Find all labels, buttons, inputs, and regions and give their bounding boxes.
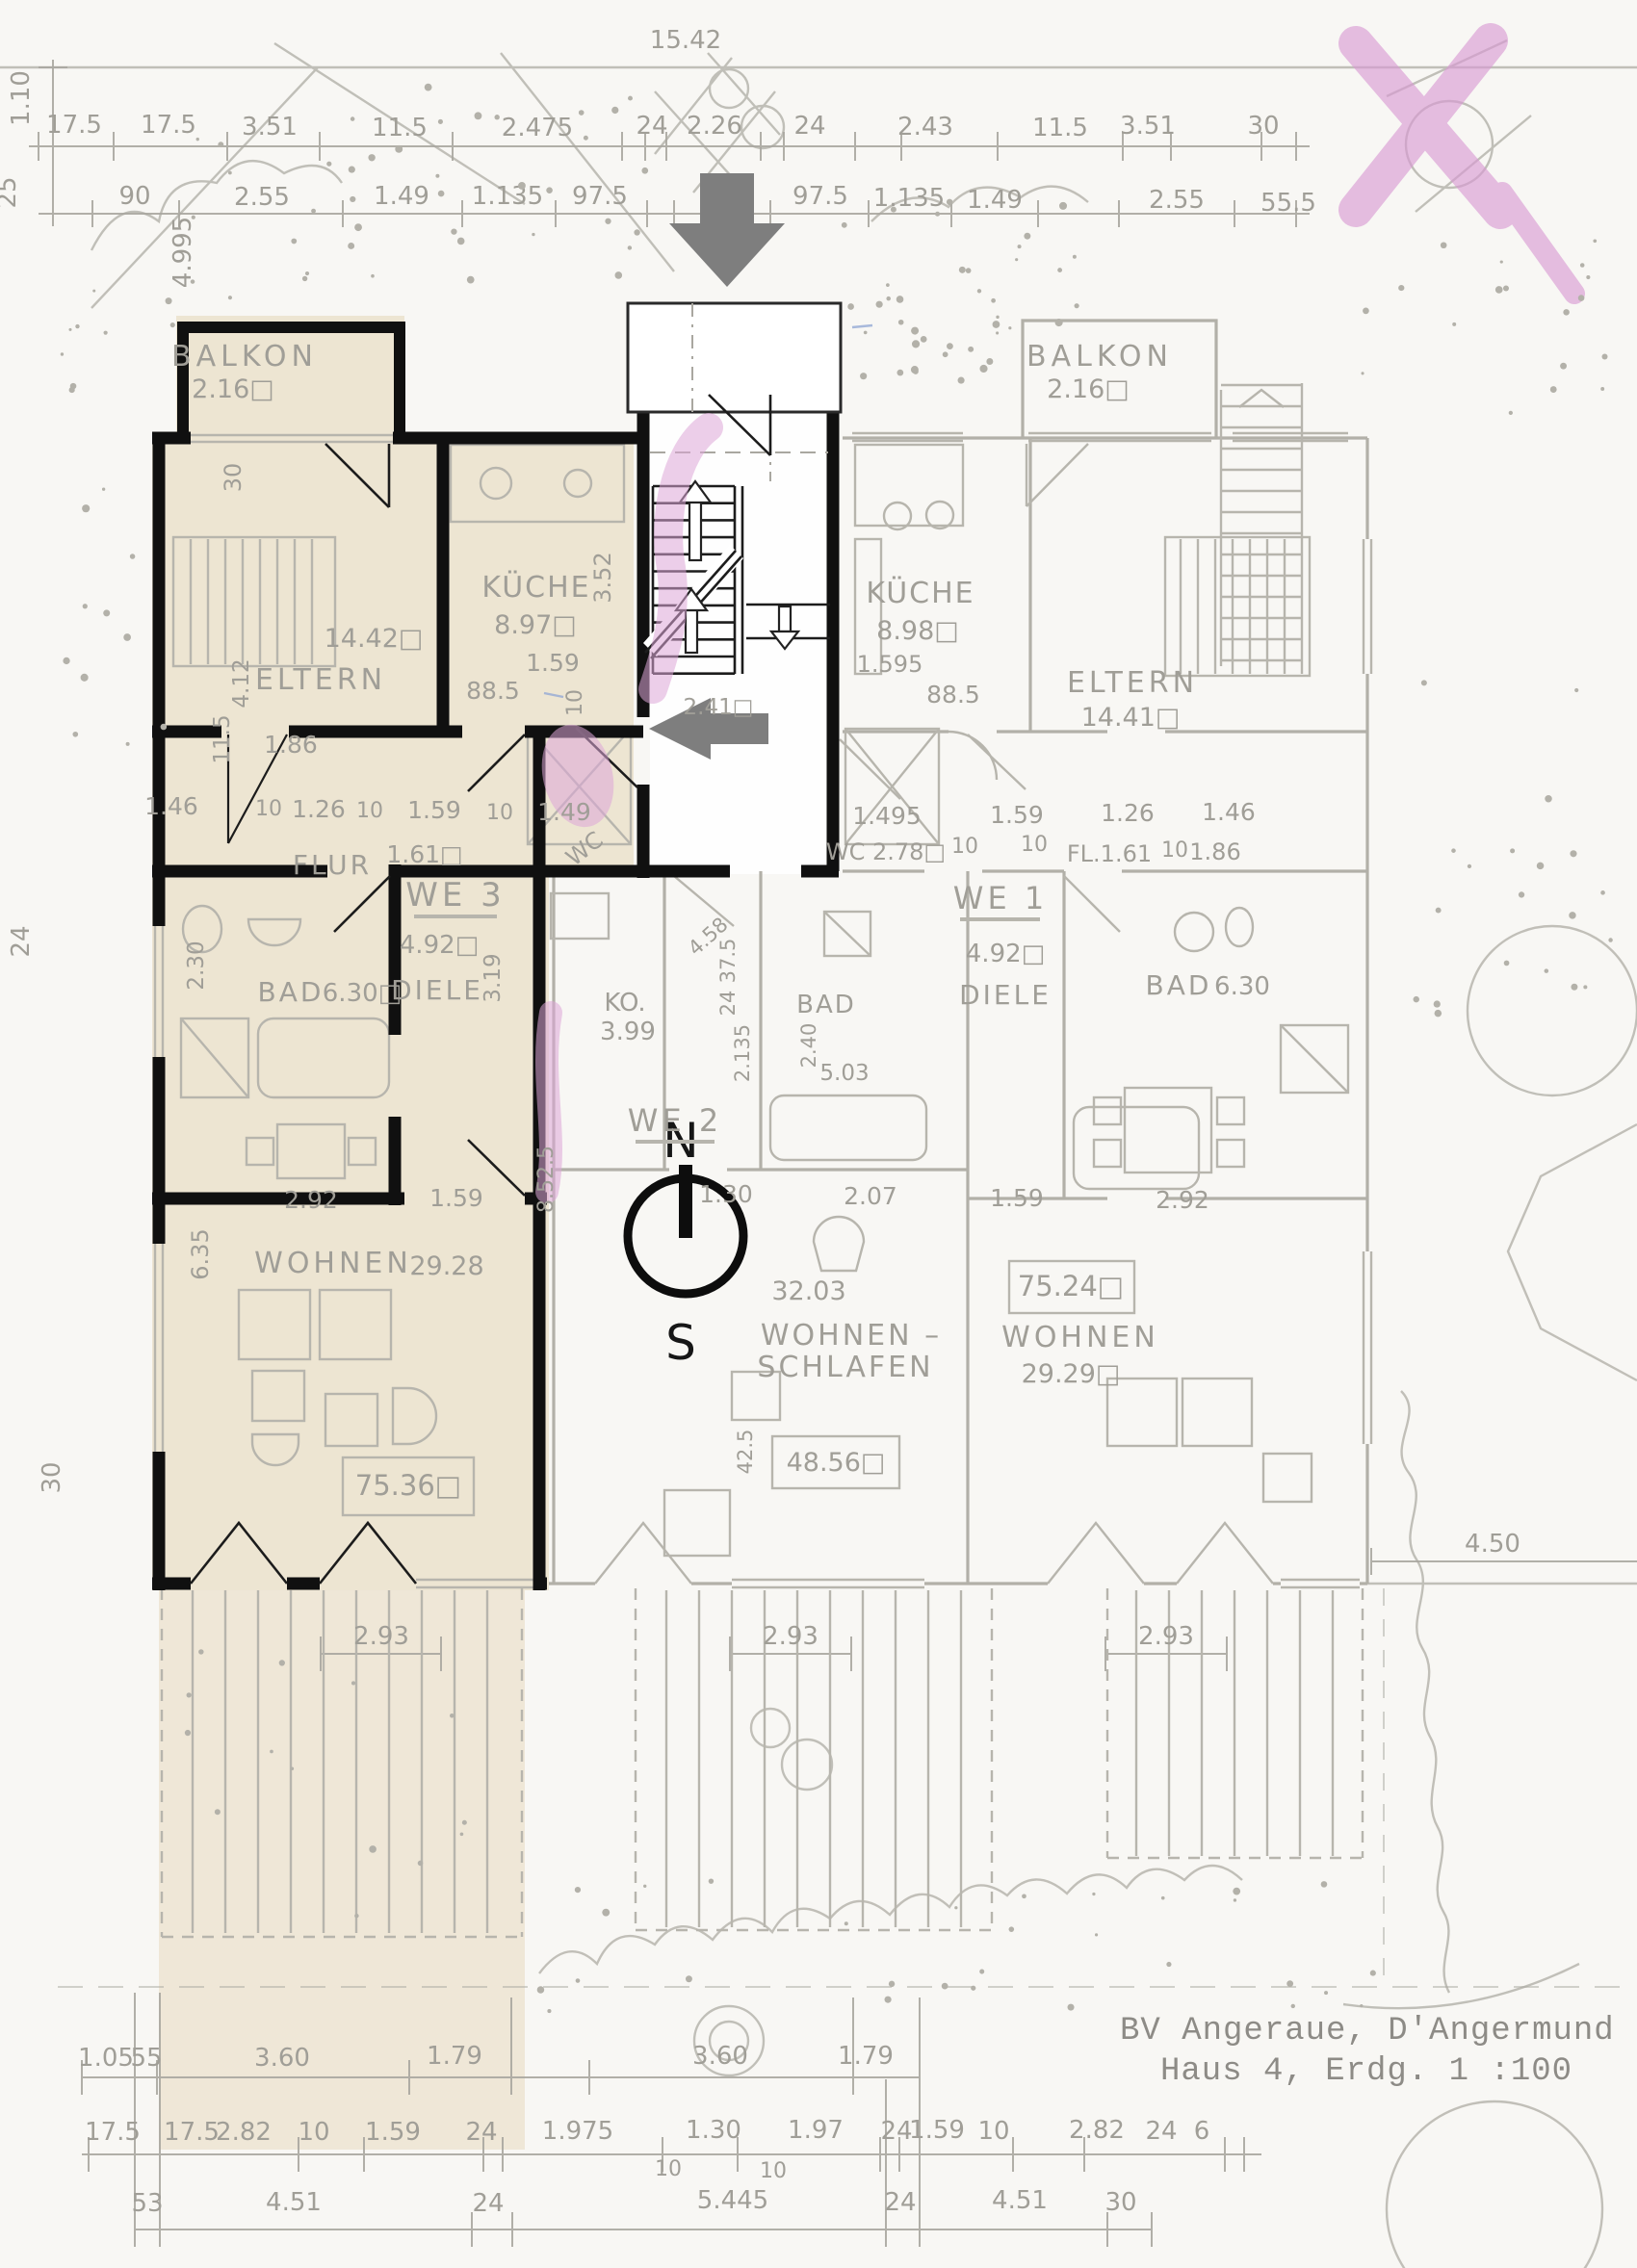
scan-dot	[1550, 386, 1557, 393]
scan-dot	[1018, 245, 1022, 248]
scan-dot	[921, 336, 927, 343]
room-label-diele-we1: DIELE	[959, 979, 1052, 1011]
dimension-label: 15.42	[650, 26, 721, 55]
floor-plan-image: N S 15.4217.517.53.5111.52.475242.26242.…	[0, 0, 1637, 2268]
scan-dot	[302, 276, 307, 281]
scan-dot	[371, 274, 375, 278]
compass-needle	[679, 1165, 692, 1238]
scan-dot	[1500, 260, 1503, 263]
dimension-label: 2.55	[1149, 186, 1205, 215]
dimension-label: 1.26	[292, 795, 346, 823]
scan-dot	[1286, 1980, 1293, 1987]
scan-dot	[1571, 984, 1577, 991]
scan-dot	[349, 167, 355, 173]
scan-dot	[864, 331, 868, 335]
scan-dot	[369, 1845, 377, 1853]
dimension-label: 2.30	[184, 941, 209, 990]
scan-dot	[986, 358, 993, 365]
apartment-label-we2: WE 2	[628, 1102, 722, 1139]
scan-dot	[475, 112, 482, 119]
dimension-label: SCHLAFEN	[757, 1351, 933, 1384]
scan-dot	[123, 633, 131, 641]
scan-dot	[847, 303, 854, 310]
dimension-label: 30	[38, 1461, 66, 1493]
dimension-label: 8.97□	[494, 610, 577, 640]
dimension-label: 24	[472, 2189, 504, 2218]
dimension-label: 1.49	[374, 182, 429, 211]
scan-dot	[1398, 285, 1404, 291]
scan-dot	[532, 233, 534, 236]
dimension-label: 2.92	[1156, 1186, 1209, 1214]
dimension-label: 17.5	[46, 111, 102, 140]
scan-dot	[1451, 848, 1456, 853]
dimension-label: 6.30□	[323, 979, 402, 1008]
scan-dot	[709, 1878, 714, 1883]
scan-dot	[1009, 1926, 1015, 1932]
dimension-label: 6.30	[1214, 972, 1270, 1001]
scan-dot	[991, 298, 996, 303]
entrance-direction-arrow	[669, 173, 785, 287]
scan-dot	[966, 268, 972, 273]
dimension-label: 2.55	[234, 183, 290, 212]
scan-dot	[897, 370, 904, 376]
scan-dot	[103, 609, 110, 616]
dimension-label: 17.5	[141, 111, 196, 140]
dimension-label: 2.41□	[684, 695, 754, 720]
scan-dot	[1057, 268, 1062, 272]
scan-dot	[462, 1820, 467, 1825]
scan-dot	[993, 321, 1000, 328]
dimension-label: 97.5	[793, 182, 848, 211]
scan-dot	[192, 216, 195, 219]
dimension-label: 1.86	[264, 731, 318, 759]
dimension-label: 3.52	[589, 552, 616, 603]
dimension-label: 25	[0, 176, 22, 208]
dimension-label: 2.26	[687, 112, 742, 141]
scan-dot	[467, 276, 475, 284]
dimension-label: 2.93	[353, 1622, 409, 1651]
scan-dot	[187, 1692, 192, 1697]
dimension-label: 14.42□	[325, 624, 424, 654]
dimension-label: 10	[760, 2159, 787, 2183]
dimension-label: 10	[356, 799, 383, 823]
dimension-label: 24	[465, 2118, 497, 2147]
scan-dot	[1503, 285, 1509, 291]
scan-dot	[166, 297, 172, 304]
dimension-label: 4.995	[169, 217, 197, 288]
dimension-label: 1.79	[838, 2042, 894, 2071]
dimension-label: 3.19	[481, 953, 506, 1002]
scan-dot	[279, 1660, 285, 1665]
dimension-label: 4.92□	[966, 940, 1045, 968]
room-label-bad-we3: BAD	[258, 976, 325, 1008]
scan-dot	[1583, 985, 1587, 989]
scan-dot	[82, 504, 90, 512]
scan-dot	[63, 657, 69, 664]
dimension-label: 24	[1145, 2117, 1177, 2146]
dimension-label: 1.26	[1101, 799, 1155, 827]
scan-dot	[348, 243, 354, 249]
scan-dot	[1570, 850, 1576, 857]
apartment-label-we1: WE 1	[953, 880, 1048, 916]
dimension-label: 30	[1247, 112, 1279, 141]
dimension-label: 2.475	[502, 114, 573, 142]
dimension-label: 4.12	[229, 658, 254, 708]
scan-dot	[450, 1714, 455, 1718]
dimension-label: 1.49	[967, 186, 1023, 215]
dimension-label: 4.50	[1465, 1530, 1520, 1559]
scan-dot	[579, 110, 585, 116]
dimension-label: 1.79	[427, 2042, 482, 2071]
scan-dot	[1233, 1888, 1240, 1895]
compass-south-label: S	[665, 1315, 696, 1371]
scan-dot	[1363, 308, 1369, 315]
dimension-label: 5.445	[697, 2186, 768, 2215]
scan-dot	[69, 387, 75, 393]
scan-dot	[942, 1983, 948, 1990]
dimension-label: 24	[793, 112, 825, 141]
dimension-label: 1.59	[429, 1184, 483, 1212]
dimension-label: 29.29□	[1022, 1359, 1121, 1389]
scan-dot	[518, 182, 526, 190]
scan-dot	[1504, 961, 1510, 966]
scan-dot	[605, 219, 611, 224]
dimension-label: 10	[486, 801, 513, 825]
scan-dot	[1545, 968, 1549, 973]
scan-dot	[1291, 2004, 1295, 2008]
dimension-label: 1.59	[990, 801, 1044, 829]
scan-dot	[1024, 233, 1030, 240]
scan-dot	[1073, 255, 1077, 259]
scan-dot	[104, 331, 108, 335]
dimension-label: 8.52.5	[534, 1146, 559, 1213]
scan-dot	[1161, 1896, 1165, 1900]
scan-dot	[228, 296, 232, 299]
pink-x-mark	[1356, 40, 1574, 294]
dimension-label: 42.5	[734, 1430, 757, 1475]
scan-dot	[75, 324, 79, 328]
dimension-label: 90	[118, 182, 150, 211]
dimension-label: 11.5	[372, 114, 428, 142]
scan-dot	[889, 1981, 895, 1987]
dimension-label: 4.92□	[400, 931, 479, 960]
dimension-label: 24	[716, 991, 740, 1017]
scan-dot	[305, 271, 309, 275]
room-label-bad-we2: BAD	[796, 991, 856, 1019]
scan-dot	[494, 115, 499, 119]
room-label-wohnen-we1: WOHNEN	[1001, 1321, 1159, 1354]
scan-dot	[1569, 912, 1575, 918]
scan-dot	[291, 239, 297, 245]
area-label-we2: 48.56□	[787, 1448, 886, 1478]
scan-dot	[611, 107, 618, 114]
dimension-label: 30	[220, 463, 247, 493]
scan-dot	[1008, 326, 1011, 329]
scan-dot	[602, 1909, 610, 1917]
scan-dot	[1055, 319, 1063, 326]
scan-dot	[947, 199, 952, 205]
scan-dot	[351, 116, 355, 121]
scan-dot	[943, 351, 948, 357]
dimension-label: 1.495	[852, 802, 922, 830]
dimension-label: 10	[655, 2157, 682, 2181]
dimension-label: 11.5	[210, 714, 235, 763]
dimension-label: 1.61□	[386, 840, 462, 868]
dimension-label: 1.135	[472, 182, 543, 211]
dimension-label: 37.5	[716, 939, 740, 984]
scan-dot	[350, 196, 355, 202]
scan-dot	[575, 1887, 581, 1893]
scan-dot	[1362, 372, 1364, 374]
scan-dot	[435, 174, 439, 178]
dimension-label: 2.92	[284, 1186, 338, 1214]
scan-dot	[1022, 1894, 1026, 1898]
dimension-label: 6	[1194, 2117, 1210, 2146]
scan-dot	[935, 212, 940, 217]
project-title: BV Angeraue, D'Angermund	[1120, 2013, 1615, 2049]
scan-dot	[81, 674, 89, 682]
scan-dot	[1075, 303, 1079, 308]
scan-dot	[438, 191, 445, 197]
scan-dot	[451, 228, 456, 234]
scan-dot	[958, 377, 965, 384]
scan-dot	[979, 1970, 984, 1974]
scan-dot	[1441, 242, 1447, 248]
scan-dot	[1421, 680, 1427, 685]
scan-dot	[584, 136, 588, 141]
dimension-label: 4.51	[992, 2186, 1048, 2215]
scan-dot	[1563, 309, 1570, 316]
dimension-label: 53	[131, 2189, 163, 2218]
scan-dot	[954, 1906, 957, 1909]
dimension-label: 1.59	[526, 649, 580, 677]
dimension-label: 55	[130, 2044, 162, 2073]
title-block: BV Angeraue, D'Angermund Haus 4, Erdg. 1…	[1120, 2013, 1615, 2090]
dimension-label: 1.10	[7, 70, 36, 126]
room-label-kueche-we3: KÜCHE	[481, 570, 590, 605]
entrance-canopy	[628, 303, 841, 412]
dimension-label: 1.59	[909, 2116, 965, 2145]
scan-dot	[1580, 263, 1585, 268]
room-label-balkon-we3: BALKON	[171, 340, 318, 374]
dimension-label: 10	[563, 689, 587, 716]
room-label-balkon-we1: BALKON	[1026, 340, 1173, 374]
dimension-label: 10	[1161, 838, 1188, 863]
scan-dot	[1092, 1893, 1095, 1895]
scan-dot	[326, 162, 331, 167]
scan-dot	[896, 296, 904, 303]
scan-dot	[1452, 322, 1456, 326]
apartment-label-we3: WE 3	[405, 876, 506, 915]
scan-dot	[1545, 795, 1551, 802]
dimension-label: 17.5	[164, 2118, 220, 2147]
dimension-label: FL.1.61	[1067, 840, 1152, 867]
scan-dot	[1435, 1010, 1442, 1018]
scan-dot	[270, 1750, 273, 1754]
dimension-label: 1.46	[144, 792, 198, 820]
dimension-label: 1.135	[873, 184, 945, 213]
scan-dot	[885, 1997, 892, 2003]
scan-dot	[68, 328, 71, 331]
dimension-label: 6.35	[187, 1228, 214, 1279]
dimension-label: 8.98□	[876, 616, 959, 646]
dimension-label: 32.03	[771, 1276, 845, 1306]
scan-dot	[1468, 864, 1471, 868]
scan-dot	[643, 1885, 646, 1888]
scan-dot	[546, 187, 553, 193]
scan-dot	[641, 168, 648, 174]
dimension-label: 2.93	[1138, 1622, 1194, 1651]
scan-dot	[977, 289, 981, 293]
room-label-kueche-we1: KÜCHE	[866, 576, 974, 610]
scan-dot	[1234, 1898, 1236, 1901]
scan-dot	[1360, 2004, 1363, 2007]
scan-dot	[547, 2009, 551, 2013]
dimension-label: 24	[7, 925, 36, 957]
scan-dot	[628, 96, 633, 101]
dimension-label: 1.59	[990, 1184, 1044, 1212]
scan-dot	[912, 340, 920, 348]
scan-dot	[311, 209, 316, 214]
dimension-label: 88.5	[466, 677, 520, 705]
dimension-label: 17.5	[85, 2118, 141, 2147]
scan-dot	[876, 301, 883, 308]
scan-dot	[1015, 258, 1018, 261]
dimension-label: 10	[951, 835, 978, 859]
room-label-wohnen-we3: WOHNEN	[254, 1247, 412, 1280]
scan-dot	[1068, 2004, 1075, 2011]
scan-dot	[971, 1986, 975, 1991]
scan-dot	[83, 604, 88, 608]
scan-dot	[1324, 1991, 1328, 1995]
dimension-label: 2.16□	[1047, 374, 1130, 404]
dimension-label: 1.05	[78, 2044, 134, 2073]
dimension-label: 2.40	[797, 1023, 820, 1069]
dimension-label: 55.5	[1260, 189, 1316, 218]
scan-dot	[686, 1975, 692, 1982]
scan-dot	[1510, 848, 1515, 853]
dimension-label: 1.46	[1202, 798, 1256, 826]
scan-dot	[130, 554, 135, 558]
room-label-bad-we1: BAD	[1146, 969, 1212, 1001]
scan-dot	[72, 732, 78, 737]
scan-dot	[1574, 688, 1578, 692]
dimension-label: 24	[880, 2117, 912, 2146]
dimension-label: 2.93	[763, 1622, 818, 1651]
scan-dot	[354, 223, 362, 231]
scan-dot	[351, 1681, 355, 1685]
dimension-label: 2.43	[897, 113, 953, 142]
scan-dot	[996, 316, 999, 319]
dimension-label: 1.30	[686, 2116, 741, 2145]
dimension-label: 1.975	[542, 2117, 613, 2146]
scan-dot	[1095, 1933, 1098, 1936]
scan-dot	[1414, 996, 1419, 1002]
dimension-label: 24	[884, 2188, 916, 2217]
scan-dot	[1608, 938, 1612, 941]
dimension-label: 1.59	[407, 796, 461, 824]
dimension-label: 30	[1104, 2188, 1136, 2217]
scan-dot	[395, 145, 403, 153]
scan-dot	[913, 369, 919, 374]
dimension-label: 1.97	[788, 2116, 844, 2145]
room-label-diele-we3: DIELE	[391, 974, 483, 1006]
scan-dot	[947, 343, 953, 349]
scan-dot	[844, 1921, 848, 1925]
dimension-label: 5.03	[819, 1061, 869, 1086]
dimension-label: 1.595	[857, 651, 923, 678]
scan-dot	[1436, 908, 1442, 914]
scan-dot	[228, 171, 232, 175]
scan-dot	[425, 84, 432, 91]
scan-dot	[198, 1649, 203, 1654]
room-label-eltern-we3: ELTERN	[255, 663, 386, 697]
dimension-label: 3.51	[242, 113, 298, 142]
sheet-title: Haus 4, Erdg. 1 :100	[1160, 2053, 1572, 2090]
scan-dot	[161, 724, 168, 731]
scan-dot	[1593, 239, 1597, 243]
scanned-floor-plan-page: N S 15.4217.517.53.5111.52.475242.26242.…	[0, 0, 1637, 2268]
scan-dot	[628, 245, 632, 249]
scan-dot	[1519, 891, 1524, 897]
scan-dot	[1600, 890, 1605, 895]
scan-dot	[1560, 363, 1567, 370]
scan-dot	[92, 290, 95, 293]
scan-dot	[537, 1986, 545, 1994]
dimension-label: 2.07	[844, 1182, 897, 1210]
scan-dot	[1600, 387, 1604, 391]
dimension-label: 14.41□	[1081, 703, 1181, 733]
scan-dot	[61, 352, 64, 355]
scan-dot	[979, 365, 987, 373]
scan-dot	[354, 1914, 359, 1919]
scan-dot	[891, 207, 896, 213]
dimension-label: 88.5	[926, 681, 980, 709]
dimension-label: 3.60	[692, 2042, 748, 2071]
dimension-label: 3.60	[254, 2044, 310, 2073]
scan-dot	[634, 229, 639, 235]
scan-dot	[1321, 1881, 1328, 1888]
scan-dot	[886, 283, 890, 287]
scan-dot	[886, 296, 891, 301]
dimension-label: 2.16□	[192, 374, 274, 404]
room-label-wohnen-we2: WOHNEN –	[761, 1319, 942, 1353]
compass: N S	[628, 1113, 743, 1371]
dimension-label: 10	[298, 2118, 329, 2147]
room-label-eltern-we1: ELTERN	[1067, 666, 1198, 700]
room-label-wc-we1: WC 2.78□	[826, 838, 946, 865]
scan-dot	[291, 1766, 295, 1770]
dimension-label: 1.49	[537, 798, 591, 826]
scan-dot	[1509, 411, 1513, 415]
scan-dot	[102, 488, 105, 491]
dimension-label: 11.5	[1032, 114, 1088, 142]
scan-dot	[438, 119, 443, 124]
dimension-label: 1.59	[365, 2118, 421, 2147]
dimension-label: 24	[636, 112, 667, 141]
scan-dot	[1370, 1971, 1376, 1976]
scan-dot	[218, 142, 223, 147]
dimension-label: 29.28	[409, 1251, 483, 1281]
dimension-label: 10	[977, 2117, 1009, 2146]
area-label-we1: 75.24□	[1018, 1270, 1124, 1302]
scan-dot	[614, 271, 622, 279]
scan-dot	[460, 1832, 464, 1836]
room-label-flur-we3: FLUR	[293, 849, 372, 881]
scan-dot	[1537, 863, 1545, 870]
dimension-label: 2.135	[731, 1024, 754, 1082]
scan-dot	[898, 320, 904, 325]
